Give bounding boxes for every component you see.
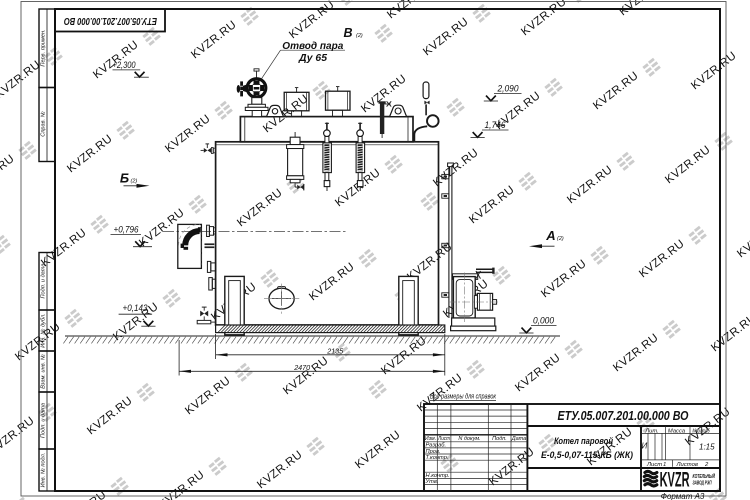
svg-text:Лит.: Лит. — [644, 428, 659, 434]
svg-text:Утв.: Утв. — [425, 479, 439, 485]
svg-text:А: А — [545, 228, 555, 243]
svg-text:Инв. № подл.: Инв. № подл. — [41, 453, 47, 488]
svg-text:Масштаб: Масштаб — [693, 429, 710, 435]
svg-text:2135: 2135 — [326, 346, 344, 355]
svg-text:Отвод пара: Отвод пара — [282, 41, 343, 52]
svg-text:Пров.: Пров. — [426, 449, 441, 455]
svg-text:Подп.: Подп. — [492, 436, 507, 442]
svg-text:KVZR: KVZR — [660, 469, 690, 492]
svg-text:2,090: 2,090 — [497, 83, 519, 93]
svg-text:Все размеры для справок: Все размеры для справок — [430, 392, 496, 401]
svg-text:Лист: Лист — [437, 436, 450, 442]
svg-text:КОТЕЛЬНЫЙ: КОТЕЛЬНЫЙ — [693, 472, 716, 480]
svg-text:Масса: Масса — [668, 428, 686, 434]
svg-text:Инв. № дубл.: Инв. № дубл. — [41, 313, 47, 347]
svg-text:0,000: 0,000 — [533, 316, 554, 326]
svg-text:Котел паровой: Котел паровой — [554, 435, 613, 446]
svg-text:Н.контр.: Н.контр. — [426, 473, 450, 479]
svg-text:Подп. и дата: Подп. и дата — [41, 263, 47, 298]
svg-text:1: 1 — [663, 462, 666, 468]
svg-text:Ду 65: Ду 65 — [298, 53, 327, 64]
svg-text:Подп. и дата: Подп. и дата — [41, 403, 47, 438]
svg-text:(2): (2) — [557, 236, 564, 242]
svg-text:Перв. примен.: Перв. примен. — [41, 29, 47, 66]
svg-text:В: В — [343, 26, 352, 40]
svg-text:+0,796: +0,796 — [114, 225, 139, 235]
svg-text:+2,300: +2,300 — [113, 60, 136, 70]
svg-text:2470: 2470 — [293, 363, 310, 372]
svg-text:1:15: 1:15 — [699, 442, 715, 451]
svg-text:(2): (2) — [356, 33, 363, 39]
svg-text:ЕТУ.05.007.201.00.000 ВО: ЕТУ.05.007.201.00.000 ВО — [558, 408, 689, 423]
svg-text:Т.контр.: Т.контр. — [426, 455, 449, 461]
svg-text:Е-0,5-0,07-115-КБ (ЖК): Е-0,5-0,07-115-КБ (ЖК) — [541, 449, 633, 460]
svg-text:+0,143: +0,143 — [123, 303, 148, 313]
svg-text:ЕТУ.05.007.201.00.000 ВО: ЕТУ.05.007.201.00.000 ВО — [64, 15, 157, 26]
svg-text:Формат А3: Формат А3 — [661, 492, 705, 500]
svg-text:Лист: Лист — [646, 462, 662, 468]
svg-text:Разраб.: Разраб. — [426, 443, 447, 449]
svg-text:Справ. №: Справ. № — [41, 111, 47, 136]
svg-text:N докум.: N докум. — [458, 436, 480, 442]
svg-text:Дата: Дата — [511, 436, 527, 442]
svg-text:И: И — [642, 442, 648, 451]
svg-text:Б: Б — [120, 171, 129, 186]
svg-text:Листов: Листов — [676, 462, 698, 468]
svg-text:ЗАВОД РЭП: ЗАВОД РЭП — [693, 480, 712, 486]
svg-text:2: 2 — [704, 462, 709, 468]
svg-text:(2): (2) — [131, 179, 138, 185]
svg-text:Взам. инв. №: Взам. инв. № — [41, 354, 47, 389]
svg-text:1,746: 1,746 — [485, 120, 506, 130]
svg-text:Изм.: Изм. — [425, 436, 437, 442]
